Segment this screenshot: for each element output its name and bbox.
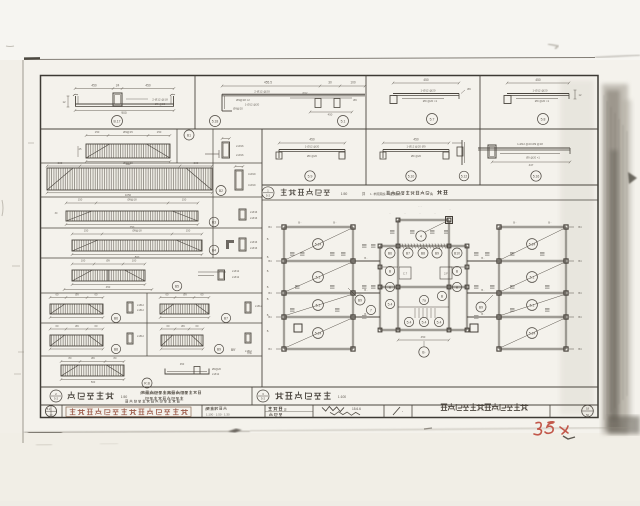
- svg-text:2-Ø12 @20: 2-Ø12 @20: [254, 90, 270, 94]
- svg-text:建: 建: [284, 407, 287, 411]
- svg-text:1-Ø12 @20: 1-Ø12 @20: [305, 144, 320, 148]
- svg-text:B4: B4: [578, 315, 582, 319]
- svg-text:B·: B·: [267, 238, 270, 241]
- svg-text:Ø9@18: Ø9@18: [127, 198, 137, 202]
- svg-text:100: 100: [350, 81, 356, 85]
- svg-text:B3: B3: [212, 220, 216, 224]
- svg-text:Ø9 @20 ×1: Ø9 @20 ×1: [535, 99, 550, 103]
- svg-text:450: 450: [309, 138, 315, 142]
- svg-text:5.14: 5.14: [529, 242, 536, 246]
- svg-text:Ø9@20: Ø9@20: [212, 367, 222, 371]
- svg-text:15.6.6: 15.6.6: [352, 407, 361, 411]
- svg-text:2-Ø12: 2-Ø12: [232, 269, 240, 273]
- svg-text:B9: B9: [217, 347, 221, 351]
- svg-text:450: 450: [421, 335, 426, 339]
- svg-text:150: 150: [186, 229, 191, 233]
- svg-text:Ø9: Ø9: [181, 324, 185, 328]
- svg-text:Ø9: Ø9: [106, 259, 110, 263]
- svg-text:100: 100: [81, 259, 86, 263]
- svg-text:24: 24: [116, 84, 120, 88]
- svg-text:B4: B4: [578, 347, 582, 351]
- svg-text:450: 450: [423, 78, 429, 82]
- svg-text:2-Ø12 @18: 2-Ø12 @18: [152, 98, 168, 102]
- svg-text:450: 450: [413, 138, 419, 142]
- svg-text:5.14: 5.14: [315, 331, 322, 335]
- svg-text:Ø9: Ø9: [467, 87, 471, 91]
- svg-text:R.B: R.B: [144, 381, 150, 385]
- svg-text:5.1: 5.1: [530, 275, 535, 279]
- svg-text:5.1: 5.1: [530, 303, 535, 307]
- svg-text:B9: B9: [358, 298, 362, 302]
- svg-text:B8: B8: [421, 251, 425, 255]
- svg-text:200: 200: [58, 161, 63, 165]
- svg-text:5.12: 5.12: [461, 174, 468, 178]
- svg-text:2-Ø12: 2-Ø12: [232, 275, 240, 279]
- svg-text:5.9: 5.9: [308, 174, 313, 178]
- svg-text:B·: B·: [267, 256, 270, 259]
- svg-text:B4: B4: [268, 225, 272, 229]
- svg-text:B··: B··: [548, 221, 552, 225]
- svg-text:1:50: 1:50: [341, 192, 348, 196]
- svg-text:2-Ø12: 2-Ø12: [137, 304, 145, 307]
- svg-text:Ø9 @20: Ø9 @20: [307, 154, 318, 158]
- svg-text:Ø9@20: Ø9@20: [123, 161, 133, 165]
- svg-text:5.7: 5.7: [430, 117, 435, 121]
- svg-text:18: 18: [586, 407, 590, 411]
- svg-text:Ø9@18 ×2: Ø9@18 ×2: [236, 98, 250, 102]
- svg-text:500: 500: [91, 380, 96, 384]
- svg-text:2-Ø16: 2-Ø16: [250, 240, 258, 244]
- svg-text:447: 447: [529, 163, 534, 167]
- svg-text:2-Ø16: 2-Ø16: [236, 144, 244, 148]
- svg-text:B·: B·: [267, 314, 270, 317]
- svg-text:5.2: 5.2: [47, 407, 51, 411]
- svg-text:2-Ø16: 2-Ø16: [250, 246, 258, 250]
- svg-text:B··: B··: [481, 257, 485, 260]
- svg-text:7a: 7a: [422, 298, 426, 302]
- svg-text:B4: B4: [268, 347, 272, 351]
- svg-text:150: 150: [95, 130, 100, 134]
- svg-text:··: ··: [404, 212, 406, 215]
- svg-text:5-2: 5-2: [261, 397, 266, 401]
- svg-text:Ø9: Ø9: [353, 98, 357, 102]
- svg-text:2.F: 2.F: [444, 272, 448, 276]
- svg-text:Ø9 @20 ×1: Ø9 @20 ×1: [526, 156, 540, 160]
- svg-text:B9: B9: [479, 305, 483, 309]
- svg-text:B5: B5: [175, 284, 179, 288]
- svg-text:··: ··: [389, 212, 391, 215]
- svg-text:5.4: 5.4: [437, 320, 442, 324]
- svg-text:B··: B··: [333, 221, 337, 225]
- svg-text:450: 450: [180, 362, 185, 366]
- svg-text:B·: B·: [267, 270, 270, 273]
- svg-text:5.1: 5.1: [316, 275, 321, 279]
- svg-text:Ø12: Ø12: [303, 91, 308, 95]
- svg-text:450: 450: [91, 84, 97, 88]
- svg-text:· · ·: · · ·: [418, 204, 422, 208]
- svg-text:B7: B7: [406, 251, 410, 255]
- svg-text:B6: B6: [114, 316, 118, 320]
- svg-text:B1: B1: [187, 133, 191, 137]
- svg-text:150: 150: [78, 198, 83, 202]
- svg-text:Ø9@20: Ø9@20: [233, 107, 243, 111]
- svg-text:B4: B4: [578, 225, 582, 229]
- svg-text:B··: B··: [481, 313, 485, 316]
- svg-text:5.14: 5.14: [529, 331, 536, 335]
- svg-text:450: 450: [328, 113, 333, 117]
- svg-text:800: 800: [135, 255, 140, 259]
- svg-text:900: 900: [121, 111, 127, 115]
- svg-text:Ø9 @20 ×1: Ø9 @20 ×1: [423, 99, 438, 103]
- svg-text:750: 750: [130, 225, 135, 229]
- svg-text:Ø9: Ø9: [75, 293, 79, 297]
- svg-text:B6: B6: [388, 251, 392, 255]
- svg-text:⾓: ⾓: [430, 191, 433, 196]
- svg-text:B2: B2: [219, 189, 223, 193]
- svg-text:1-Ø12 @20: 1-Ø12 @20: [533, 89, 548, 93]
- svg-text:B9': B9': [231, 348, 236, 352]
- svg-text:B7: B7: [224, 316, 228, 320]
- svg-text:150: 150: [157, 130, 162, 134]
- svg-text:455.5: 455.5: [264, 81, 272, 85]
- svg-text:5.4: 5.4: [388, 302, 393, 306]
- svg-text:C.7: C.7: [403, 272, 408, 276]
- svg-text:B·: B·: [267, 298, 270, 301]
- svg-text:B4: B4: [212, 248, 216, 252]
- svg-text:1-Ø12 @20 Ø9: 1-Ø12 @20 Ø9: [406, 144, 425, 148]
- svg-text:5.1: 5.1: [316, 303, 321, 307]
- svg-text:2-Ø12: 2-Ø12: [245, 350, 252, 353]
- svg-text:Ø9: Ø9: [91, 356, 95, 360]
- svg-text:100: 100: [132, 259, 137, 263]
- svg-text:2-Ø12: 2-Ø12: [255, 305, 263, 308]
- svg-text:B.17: B.17: [114, 119, 121, 123]
- svg-text:2-Ø16: 2-Ø16: [250, 216, 258, 220]
- svg-text:2-Ø16: 2-Ø16: [250, 210, 258, 214]
- svg-text:5.14: 5.14: [315, 242, 322, 246]
- svg-text:Ø9 @20: Ø9 @20: [411, 154, 422, 158]
- svg-text:450: 450: [145, 84, 151, 88]
- svg-text:··: ··: [449, 208, 451, 211]
- svg-text:5.4: 5.4: [407, 320, 412, 324]
- svg-text:5.4: 5.4: [422, 320, 427, 324]
- svg-text:150: 150: [84, 229, 89, 233]
- svg-text:B10: B10: [454, 251, 460, 255]
- svg-text:2-Ø12: 2-Ø12: [137, 309, 145, 312]
- svg-text:B··: B··: [298, 221, 302, 225]
- svg-text:B··: B··: [364, 289, 368, 292]
- svg-text:30: 30: [328, 81, 332, 85]
- svg-text:B··: B··: [364, 257, 368, 260]
- svg-text:1:50: 1:50: [121, 395, 128, 399]
- svg-text:2-Ø16: 2-Ø16: [236, 153, 244, 157]
- svg-text:5.8: 5.8: [541, 117, 546, 121]
- svg-text:1-Ø12 @20 Ø9 @18: 1-Ø12 @20 Ø9 @18: [517, 142, 543, 146]
- svg-text:1-Ø12 @20: 1-Ø12 @20: [245, 103, 260, 107]
- svg-text:3-Ø19: 3-Ø19: [248, 172, 256, 176]
- svg-text:Ø9 @20: Ø9 @20: [155, 102, 166, 106]
- svg-text:5.16: 5.16: [533, 174, 540, 178]
- svg-text:1:100: 1:100: [338, 395, 346, 399]
- svg-text:B4: B4: [578, 291, 582, 295]
- svg-text:3-Ø19: 3-Ø19: [248, 183, 256, 187]
- svg-text:Ø9@18: Ø9@18: [132, 229, 142, 233]
- svg-text:5.10: 5.10: [408, 174, 415, 178]
- svg-text:450: 450: [535, 78, 541, 82]
- svg-text:Ø9: Ø9: [75, 324, 79, 328]
- svg-text:4: 4: [420, 234, 422, 238]
- svg-text:7: 7: [370, 308, 372, 312]
- svg-text:450: 450: [106, 285, 111, 289]
- svg-text:B8: B8: [114, 347, 118, 351]
- svg-text:5-2: 5-2: [54, 397, 59, 401]
- svg-text:1:100 · 1:50 · 1:30: 1:100 · 1:50 · 1:30: [206, 413, 230, 417]
- svg-text:B4: B4: [578, 259, 582, 263]
- svg-text:B··: B··: [481, 289, 485, 292]
- svg-text:200: 200: [194, 161, 199, 165]
- svg-text:2-Ø12: 2-Ø12: [212, 372, 220, 376]
- svg-text:5-2: 5-2: [266, 193, 271, 197]
- svg-text:50: 50: [586, 413, 590, 417]
- svg-text:150: 150: [182, 198, 187, 202]
- svg-text:5.1: 5.1: [341, 119, 346, 123]
- svg-text:2-Ø12: 2-Ø12: [137, 335, 145, 338]
- svg-text:5.18: 5.18: [212, 119, 219, 123]
- svg-text:B·: B·: [267, 330, 270, 333]
- svg-text:12: 12: [62, 100, 66, 104]
- svg-text:B9: B9: [435, 251, 439, 255]
- svg-text:1-Ø12 @20: 1-Ø12 @20: [421, 89, 436, 93]
- svg-text:··: ··: [434, 212, 436, 215]
- svg-text:1050: 1050: [125, 193, 132, 197]
- svg-text:Ø9@15: Ø9@15: [123, 130, 133, 134]
- svg-text:B·: B·: [422, 350, 425, 354]
- svg-text:B4: B4: [268, 259, 272, 263]
- svg-text:B·: B·: [267, 286, 270, 289]
- svg-text:B4: B4: [268, 291, 272, 295]
- svg-text:··: ··: [419, 212, 421, 215]
- svg-text:Ø9: Ø9: [183, 293, 187, 297]
- svg-text:B··: B··: [513, 221, 517, 225]
